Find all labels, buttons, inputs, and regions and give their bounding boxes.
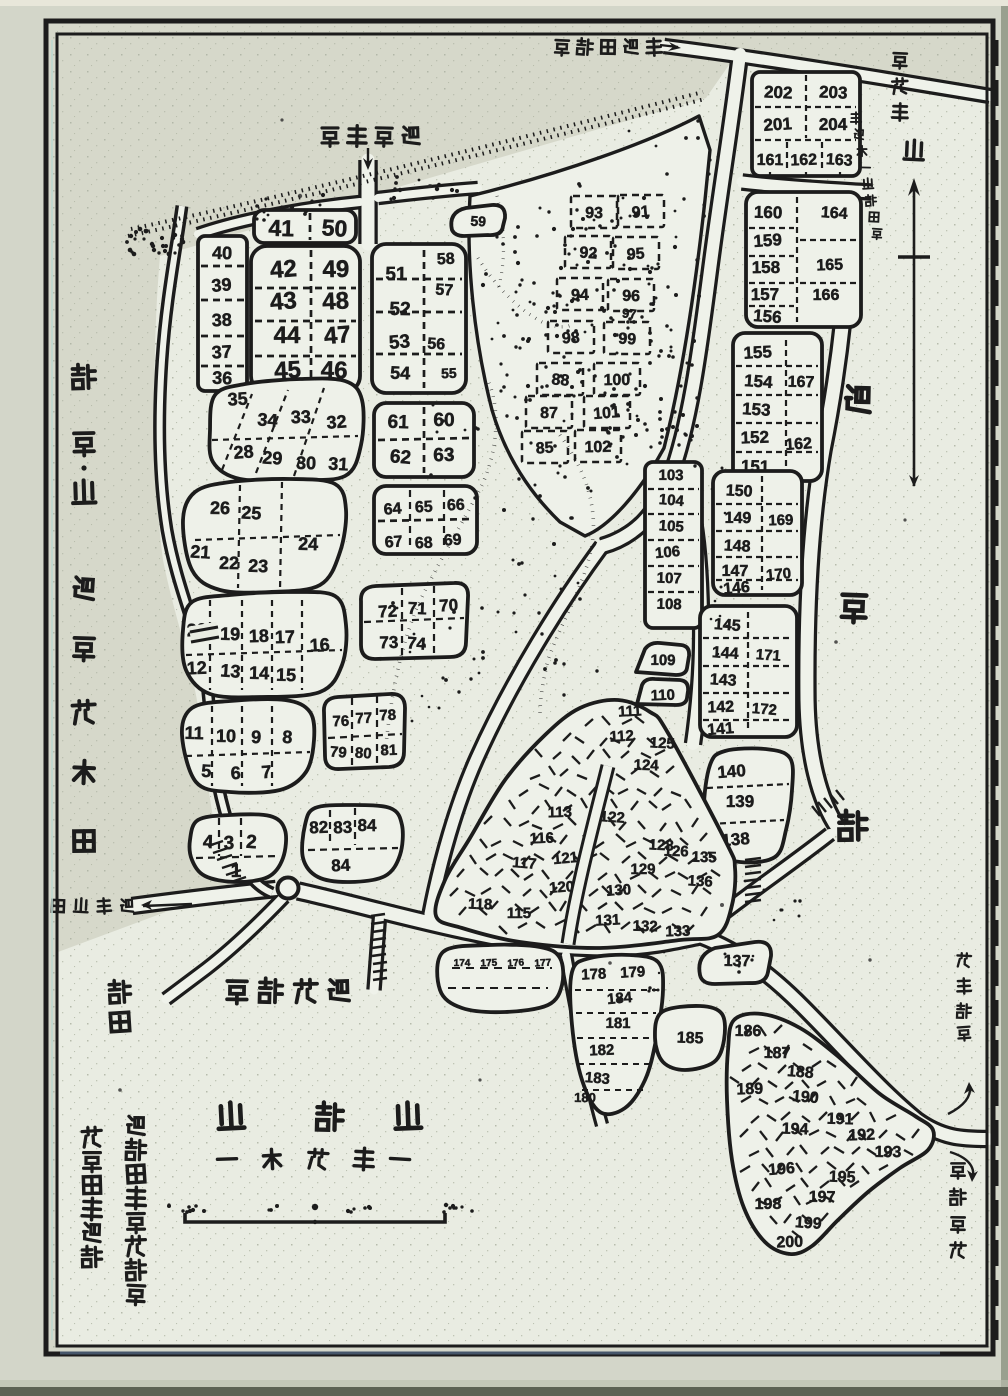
svg-text:167: 167 <box>788 374 815 392</box>
svg-text:185: 185 <box>677 1030 704 1048</box>
svg-text:22: 22 <box>219 553 239 573</box>
svg-text:146: 146 <box>723 579 751 598</box>
svg-text:87: 87 <box>540 405 558 422</box>
svg-text:101: 101 <box>593 404 621 423</box>
svg-text:186: 186 <box>735 1023 762 1040</box>
svg-text:174: 174 <box>454 958 471 969</box>
svg-text:112: 112 <box>609 727 634 745</box>
svg-text:152: 152 <box>740 428 769 448</box>
svg-text:21: 21 <box>190 541 211 562</box>
svg-text:54: 54 <box>390 363 411 384</box>
svg-text:3: 3 <box>223 833 234 854</box>
svg-text:77: 77 <box>355 710 372 728</box>
svg-text:33: 33 <box>291 407 312 428</box>
svg-text:142: 142 <box>707 699 734 717</box>
svg-text:18: 18 <box>249 626 270 646</box>
svg-text:103: 103 <box>658 467 683 484</box>
svg-text:38: 38 <box>211 310 232 331</box>
svg-text:105: 105 <box>658 517 684 536</box>
svg-text:195: 195 <box>828 1168 855 1186</box>
svg-text:193: 193 <box>875 1144 902 1161</box>
svg-text:147: 147 <box>722 563 749 580</box>
svg-text:12: 12 <box>186 658 207 679</box>
svg-text:183: 183 <box>584 1069 610 1088</box>
svg-text:83: 83 <box>333 818 353 838</box>
svg-text:62: 62 <box>389 446 412 469</box>
svg-text:171: 171 <box>755 646 781 665</box>
svg-text:100: 100 <box>603 372 630 389</box>
svg-text:158: 158 <box>752 258 781 277</box>
svg-text:99: 99 <box>618 331 637 349</box>
svg-text:19: 19 <box>220 624 241 644</box>
svg-text:137: 137 <box>724 953 751 970</box>
svg-text:41: 41 <box>268 215 295 242</box>
svg-text:125: 125 <box>649 734 675 752</box>
svg-text:116: 116 <box>529 830 554 848</box>
svg-text:178: 178 <box>581 965 607 983</box>
svg-text:16: 16 <box>309 635 330 656</box>
svg-text:139: 139 <box>726 792 754 811</box>
svg-text:192: 192 <box>848 1126 875 1144</box>
svg-text:81: 81 <box>380 742 397 760</box>
svg-text:141: 141 <box>707 720 735 739</box>
svg-text:76: 76 <box>332 713 349 731</box>
svg-text:85: 85 <box>535 439 554 457</box>
svg-text:56: 56 <box>427 336 446 354</box>
svg-text:143: 143 <box>709 671 737 690</box>
svg-text:115: 115 <box>507 905 531 922</box>
svg-text:191: 191 <box>827 1111 854 1129</box>
svg-text:162: 162 <box>785 435 813 454</box>
svg-text:155: 155 <box>743 342 772 363</box>
svg-text:181: 181 <box>605 1015 630 1032</box>
svg-text:180: 180 <box>574 1090 596 1105</box>
svg-text:9: 9 <box>251 727 262 747</box>
svg-text:160: 160 <box>754 203 783 223</box>
svg-text:156: 156 <box>753 306 783 327</box>
svg-text:73: 73 <box>379 633 398 652</box>
svg-text:64: 64 <box>383 500 402 518</box>
svg-text:79: 79 <box>329 743 347 761</box>
svg-text:78: 78 <box>379 707 397 725</box>
svg-text:80: 80 <box>354 744 372 762</box>
svg-text:42: 42 <box>269 255 298 284</box>
svg-text:132: 132 <box>632 918 658 936</box>
svg-text:84: 84 <box>357 816 377 835</box>
svg-text:177: 177 <box>534 958 552 970</box>
svg-text:32: 32 <box>326 411 347 432</box>
svg-text:197: 197 <box>809 1189 836 1207</box>
svg-text:170: 170 <box>765 565 791 584</box>
svg-text:150: 150 <box>725 482 753 500</box>
svg-text:82: 82 <box>309 818 329 838</box>
svg-text:7: 7 <box>261 762 273 783</box>
svg-text:108: 108 <box>656 596 682 614</box>
svg-text:104: 104 <box>658 491 685 510</box>
svg-text:148: 148 <box>723 537 751 555</box>
svg-text:190: 190 <box>791 1088 819 1107</box>
svg-text:159: 159 <box>753 230 783 251</box>
svg-text:58: 58 <box>436 251 455 269</box>
svg-text:67: 67 <box>384 533 403 551</box>
svg-text:166: 166 <box>813 287 840 304</box>
svg-text:51: 51 <box>385 264 407 285</box>
svg-text:133: 133 <box>665 923 691 941</box>
svg-text:157: 157 <box>751 285 780 304</box>
svg-text:40: 40 <box>212 243 233 263</box>
svg-text:154: 154 <box>744 371 774 392</box>
svg-text:204: 204 <box>819 115 848 134</box>
svg-text:175: 175 <box>480 958 498 970</box>
svg-text:118: 118 <box>468 896 493 914</box>
svg-text:194: 194 <box>782 1121 809 1139</box>
svg-text:68: 68 <box>414 535 433 553</box>
svg-text:126: 126 <box>663 843 689 861</box>
svg-text:35: 35 <box>227 388 248 409</box>
svg-text:189: 189 <box>736 1081 763 1099</box>
svg-text:201: 201 <box>763 114 793 135</box>
svg-text:153: 153 <box>742 399 772 420</box>
svg-text:164: 164 <box>820 204 848 223</box>
svg-text:47: 47 <box>323 321 352 350</box>
svg-text:135: 135 <box>691 849 716 867</box>
svg-text:202: 202 <box>764 82 793 102</box>
svg-text:23: 23 <box>248 556 269 577</box>
svg-text:84: 84 <box>331 856 351 876</box>
svg-text:188: 188 <box>786 1063 814 1082</box>
svg-text:52: 52 <box>389 299 410 320</box>
svg-text:144: 144 <box>711 644 739 663</box>
svg-text:196: 196 <box>768 1160 796 1179</box>
svg-text:199: 199 <box>794 1214 822 1233</box>
svg-text:162: 162 <box>790 151 817 169</box>
svg-text:10: 10 <box>216 726 236 746</box>
svg-text:26: 26 <box>210 498 230 518</box>
svg-text:187: 187 <box>764 1045 791 1062</box>
svg-text:39: 39 <box>211 274 233 296</box>
svg-text:44: 44 <box>274 322 301 349</box>
svg-text:50: 50 <box>321 214 348 242</box>
svg-text:15: 15 <box>276 665 296 685</box>
svg-text:66: 66 <box>447 497 466 515</box>
svg-text:25: 25 <box>241 502 262 523</box>
svg-text:176: 176 <box>507 957 525 969</box>
svg-text:131: 131 <box>595 911 621 929</box>
svg-text:121: 121 <box>552 849 578 868</box>
svg-text:5: 5 <box>201 761 212 781</box>
svg-text:113: 113 <box>548 804 573 822</box>
svg-text:31: 31 <box>328 453 349 474</box>
svg-text:14: 14 <box>249 663 270 684</box>
svg-text:136: 136 <box>687 872 713 890</box>
svg-text:28: 28 <box>233 441 254 462</box>
svg-text:61: 61 <box>387 412 409 434</box>
svg-text:111: 111 <box>618 702 642 720</box>
svg-text:2: 2 <box>245 832 257 854</box>
svg-text:17: 17 <box>275 627 295 647</box>
svg-text:13: 13 <box>220 660 242 681</box>
svg-text:172: 172 <box>751 700 777 719</box>
svg-text:49: 49 <box>322 256 349 283</box>
svg-text:24: 24 <box>298 534 318 554</box>
svg-text:130: 130 <box>606 881 632 900</box>
svg-text:43: 43 <box>269 287 298 316</box>
svg-text:117: 117 <box>512 854 537 873</box>
svg-text:59: 59 <box>470 213 487 230</box>
svg-text:71: 71 <box>407 599 427 619</box>
svg-text:182: 182 <box>589 1042 615 1060</box>
svg-text:11: 11 <box>184 723 204 743</box>
svg-text:55: 55 <box>441 365 457 381</box>
svg-text:149: 149 <box>725 510 752 527</box>
svg-text:34: 34 <box>257 409 279 431</box>
svg-text:163: 163 <box>825 151 853 170</box>
svg-text:106: 106 <box>654 543 680 562</box>
svg-text:88: 88 <box>551 371 570 389</box>
svg-text:92: 92 <box>579 244 598 262</box>
svg-text:179: 179 <box>620 963 646 981</box>
svg-text:29: 29 <box>262 447 283 468</box>
svg-text:30: 30 <box>296 453 316 473</box>
svg-text:198: 198 <box>755 1196 782 1213</box>
svg-text:102: 102 <box>584 439 611 457</box>
svg-text:72: 72 <box>378 601 398 621</box>
svg-text:57: 57 <box>435 282 454 300</box>
svg-text:200: 200 <box>776 1234 803 1252</box>
svg-text:161: 161 <box>757 152 784 169</box>
svg-text:110: 110 <box>650 687 675 705</box>
svg-text:129: 129 <box>630 861 655 878</box>
svg-text:48: 48 <box>322 287 350 315</box>
svg-text:6: 6 <box>230 763 241 783</box>
svg-text:109: 109 <box>650 652 675 669</box>
svg-text:69: 69 <box>443 531 462 549</box>
svg-text:169: 169 <box>768 512 794 530</box>
svg-text:4: 4 <box>203 832 215 853</box>
svg-text:203: 203 <box>819 82 848 102</box>
svg-text:140: 140 <box>717 761 747 782</box>
svg-text:107: 107 <box>656 570 682 588</box>
svg-text:124: 124 <box>633 757 659 775</box>
svg-text:37: 37 <box>211 342 232 363</box>
svg-text:95: 95 <box>626 245 645 263</box>
svg-text:53: 53 <box>388 331 411 354</box>
svg-text:65: 65 <box>414 499 433 517</box>
svg-text:8: 8 <box>282 727 293 748</box>
svg-text:165: 165 <box>816 256 843 274</box>
